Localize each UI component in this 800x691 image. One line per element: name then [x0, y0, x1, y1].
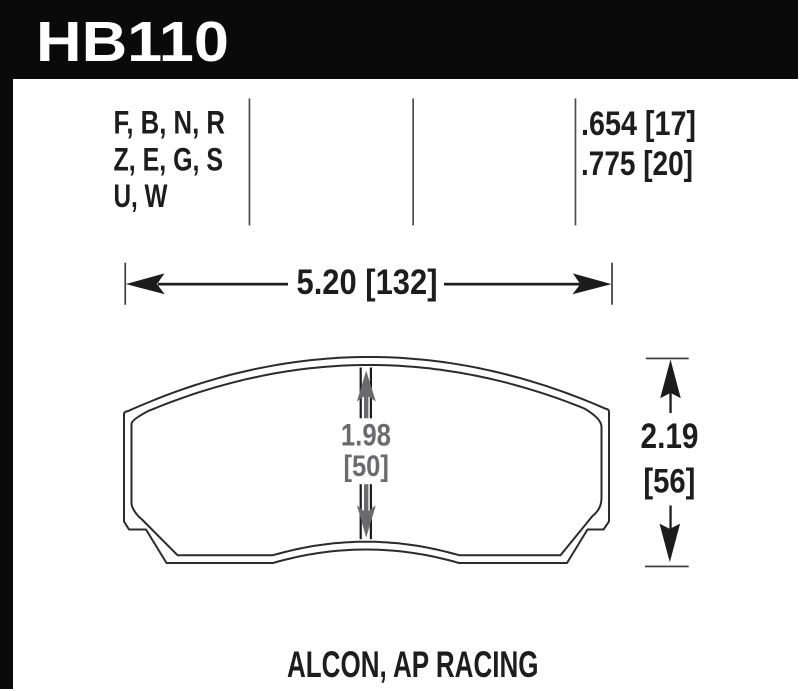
svg-text:HB110: HB110 — [36, 10, 229, 74]
svg-text:.775 [20]: .775 [20] — [581, 145, 693, 183]
svg-text:ALCON, AP RACING: ALCON, AP RACING — [287, 644, 539, 685]
svg-text:F, B, N, R: F, B, N, R — [114, 105, 226, 141]
svg-text:U, W: U, W — [114, 178, 169, 214]
svg-text:1.98: 1.98 — [341, 417, 391, 453]
svg-text:[50]: [50] — [343, 450, 389, 483]
svg-text:[56]: [56] — [643, 463, 695, 501]
svg-text:Z, E, G, S: Z, E, G, S — [114, 142, 224, 178]
svg-text:2.19: 2.19 — [641, 417, 699, 456]
svg-text:.654 [17]: .654 [17] — [581, 105, 696, 143]
svg-text:5.20 [132]: 5.20 [132] — [297, 263, 438, 302]
